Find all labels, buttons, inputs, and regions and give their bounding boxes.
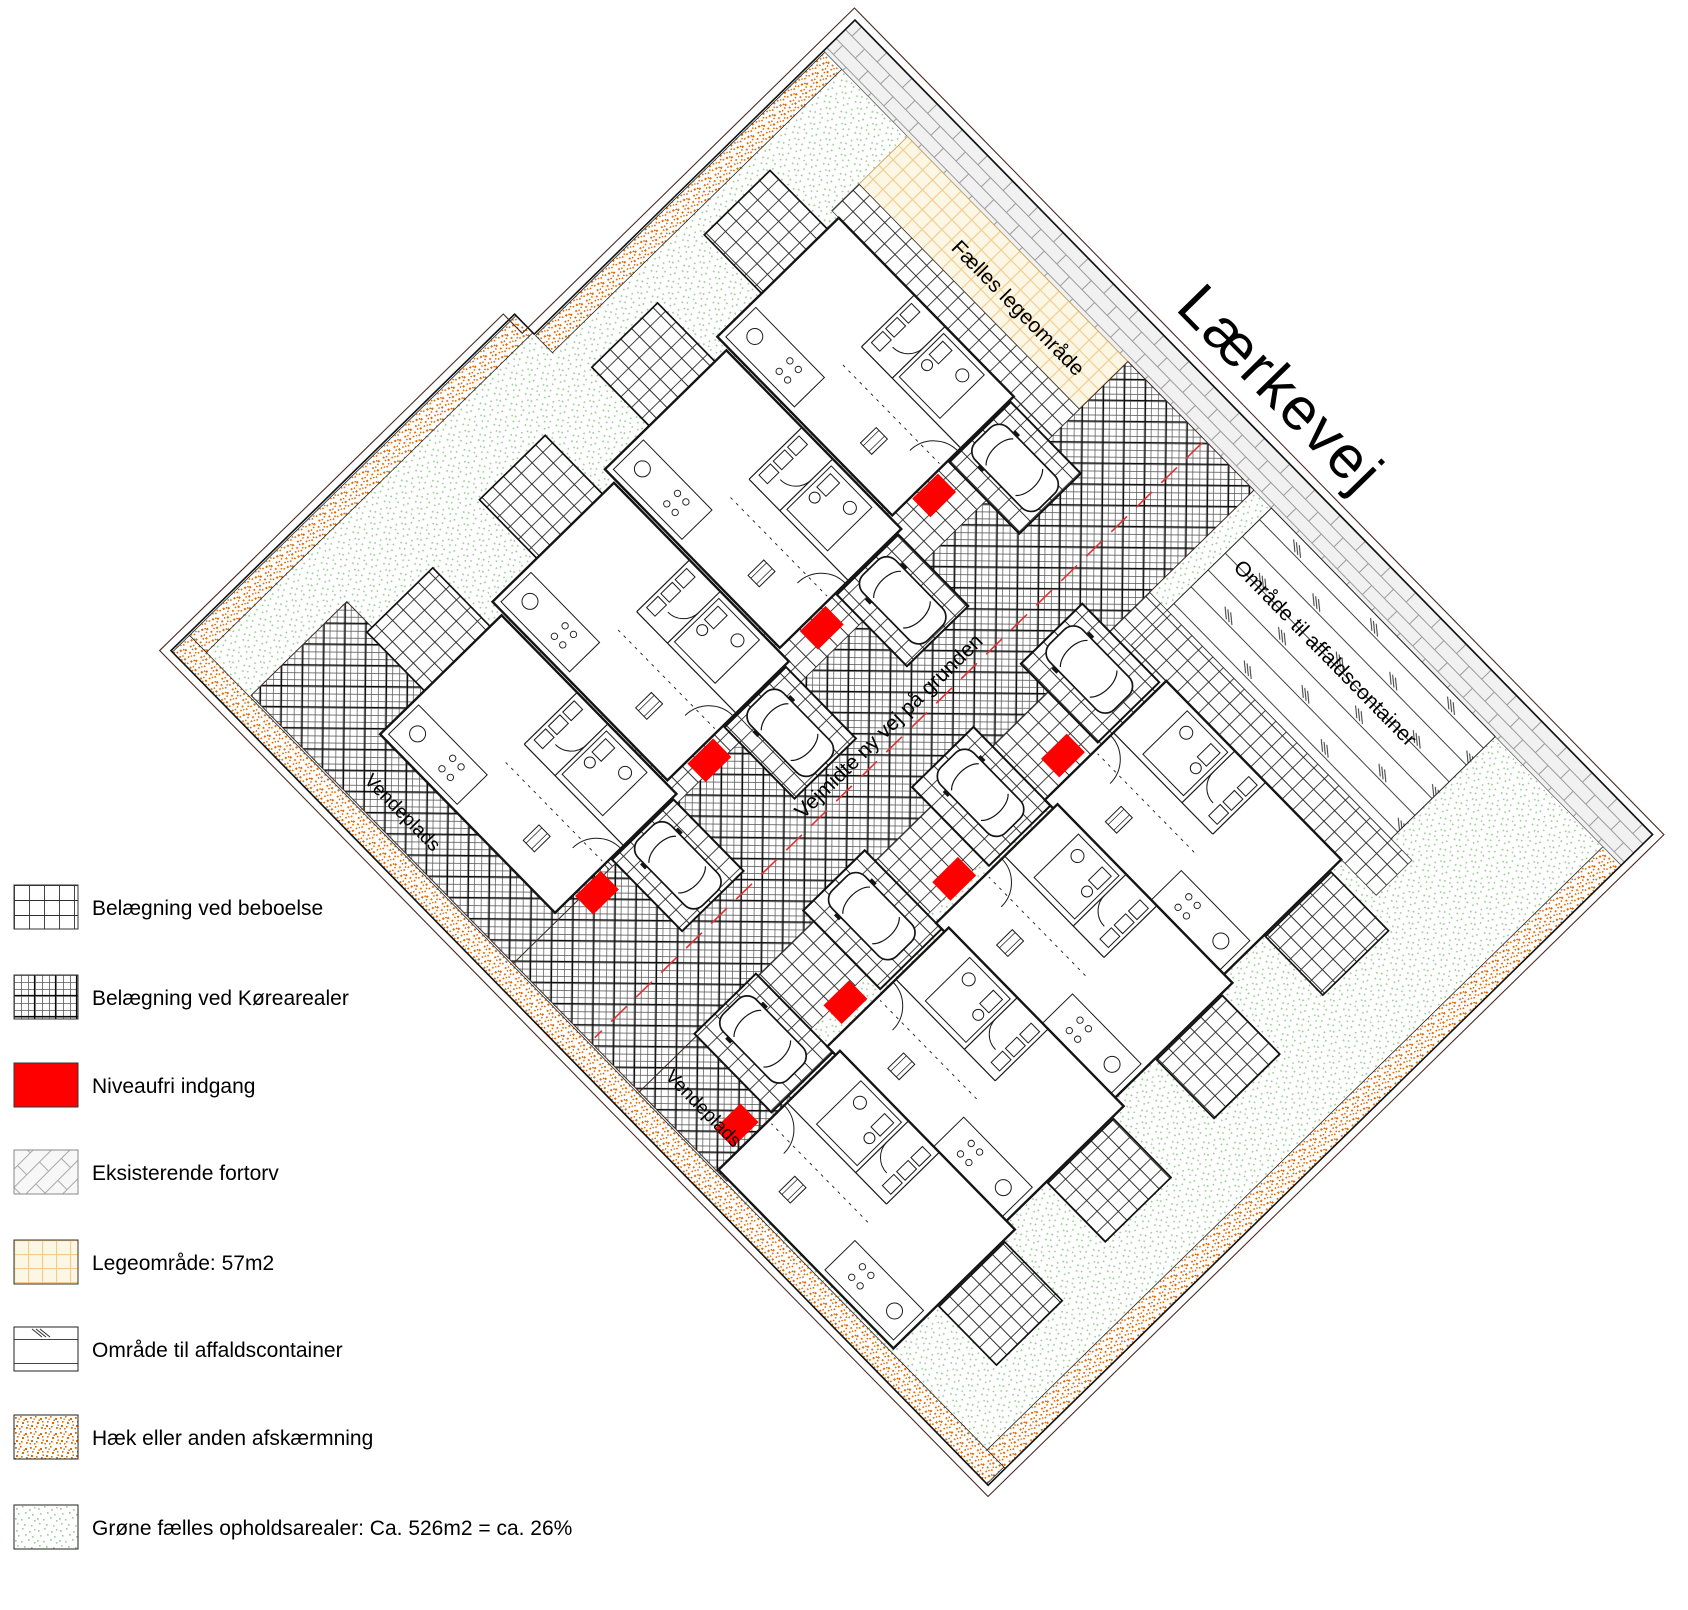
beboelse-swatch bbox=[14, 885, 78, 929]
legend-label: Område til affaldscontainer bbox=[92, 1339, 343, 1362]
haek-swatch bbox=[14, 1415, 78, 1459]
legend: Belægning ved beboelse Belægning ved Kør… bbox=[14, 885, 572, 1549]
legeomraade-swatch bbox=[14, 1240, 78, 1284]
legend-label: Legeområde: 57m2 bbox=[92, 1252, 274, 1275]
affald-swatch bbox=[14, 1327, 78, 1371]
koerearealer-swatch bbox=[14, 975, 78, 1019]
legend-item-fortorv: Eksisterende fortorv bbox=[14, 1150, 279, 1194]
legend-label: Niveaufri indgang bbox=[92, 1075, 255, 1098]
legend-label: Eksisterende fortorv bbox=[92, 1162, 279, 1185]
site-plan-figure: Fælles legeområde Område til affaldscont… bbox=[0, 0, 1688, 1610]
site-plan: Fælles legeområde Område til affaldscont… bbox=[160, 0, 1688, 1496]
legend-item-koerearealer: Belægning ved Kørearealer bbox=[14, 975, 349, 1019]
legend-item-legeomraade: Legeområde: 57m2 bbox=[14, 1240, 274, 1284]
legend-item-haek: Hæk eller anden afskærmning bbox=[14, 1415, 373, 1459]
site-plan-page: Fælles legeområde Område til affaldscont… bbox=[0, 0, 1688, 1610]
legend-item-beboelse: Belægning ved beboelse bbox=[14, 885, 323, 929]
legend-label: Hæk eller anden afskærmning bbox=[92, 1427, 373, 1450]
fortorv-swatch bbox=[14, 1150, 78, 1194]
legend-label: Grøne fælles opholdsarealer: Ca. 526m2 =… bbox=[92, 1517, 572, 1540]
legend-item-groen: Grøne fælles opholdsarealer: Ca. 526m2 =… bbox=[14, 1505, 572, 1549]
groen-swatch bbox=[14, 1505, 78, 1549]
legend-item-niveaufri: Niveaufri indgang bbox=[14, 1063, 255, 1107]
legend-label: Belægning ved beboelse bbox=[92, 897, 323, 920]
legend-label: Belægning ved Kørearealer bbox=[92, 987, 349, 1010]
niveaufri-swatch bbox=[14, 1063, 78, 1107]
legend-item-affald: Område til affaldscontainer bbox=[14, 1327, 343, 1371]
